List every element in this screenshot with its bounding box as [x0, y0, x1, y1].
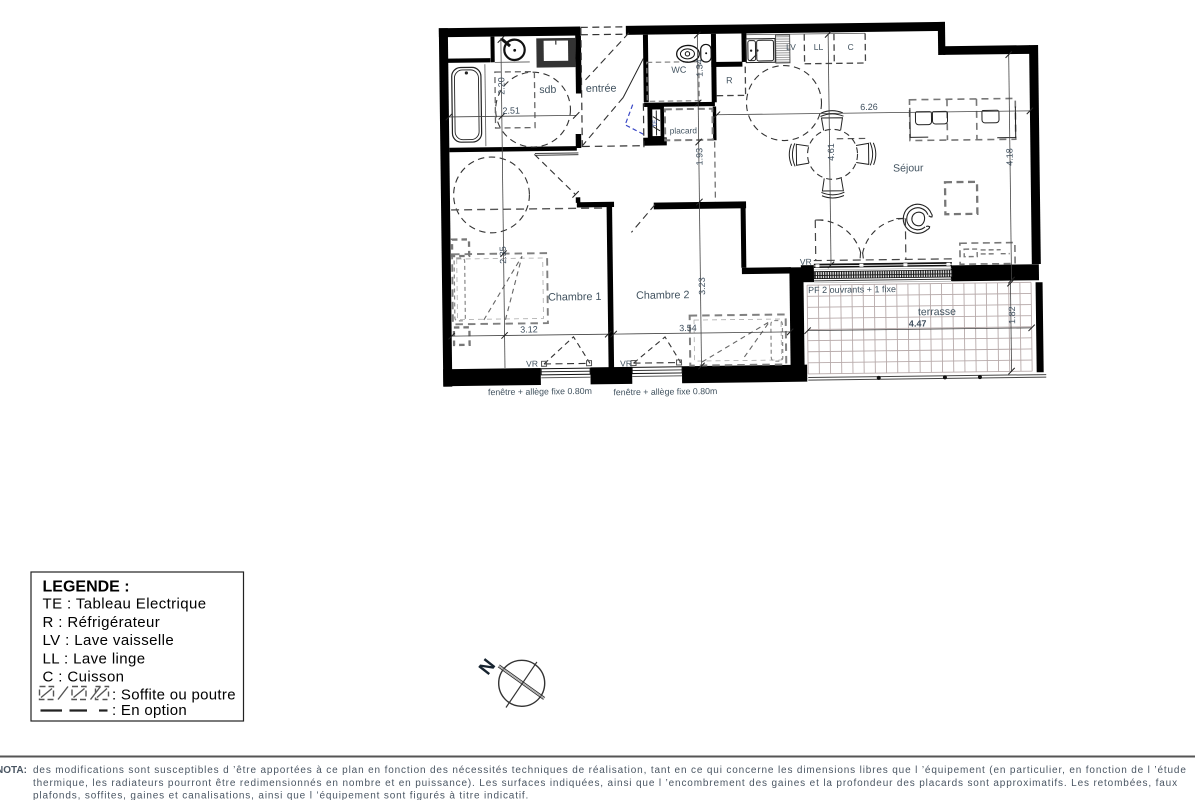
- svg-text:Séjour: Séjour: [893, 162, 924, 174]
- svg-text:4.18: 4.18: [1004, 148, 1014, 166]
- svg-text:3.12: 3.12: [520, 324, 538, 334]
- svg-text:LV: LV: [786, 42, 796, 52]
- svg-text:WC: WC: [671, 65, 687, 75]
- svg-text:2.20: 2.20: [496, 77, 506, 95]
- svg-text:1.82: 1.82: [1007, 306, 1017, 324]
- svg-text:1.93: 1.93: [694, 148, 704, 166]
- svg-text:R : Réfrigérateur: R : Réfrigérateur: [43, 614, 161, 631]
- svg-text:4.61: 4.61: [826, 143, 836, 161]
- svg-text:LL : Lave linge: LL : Lave linge: [43, 650, 146, 667]
- svg-text:Chambre 1: Chambre 1: [548, 291, 602, 304]
- svg-text:LL: LL: [814, 42, 824, 52]
- svg-text:fenêtre + allège fixe 0.80m: fenêtre + allège fixe 0.80m: [488, 386, 592, 397]
- svg-text:placard: placard: [670, 125, 698, 135]
- svg-text:PF 2 ouvrants + 1 fixe: PF 2 ouvrants + 1 fixe: [808, 284, 896, 295]
- svg-text:LV : Lave vaisselle: LV : Lave vaisselle: [43, 632, 175, 649]
- svg-text:thermique, les radiateurs pour: thermique, les radiateurs pourront être …: [33, 778, 1178, 789]
- svg-text:2.35: 2.35: [498, 246, 508, 264]
- svg-text:VR: VR: [620, 358, 632, 368]
- svg-text:: En option: : En option: [112, 702, 187, 719]
- svg-text:LEGENDE :: LEGENDE :: [43, 579, 130, 596]
- svg-text:3.23: 3.23: [697, 277, 707, 295]
- svg-text:2.51: 2.51: [502, 106, 520, 116]
- svg-text:4.47: 4.47: [909, 318, 927, 328]
- svg-text:des modifications sont suscept: des modifications sont susceptibles d ’ê…: [33, 765, 1187, 776]
- svg-text:VR: VR: [526, 359, 538, 369]
- svg-text:plafonds, soffites, gaines et: plafonds, soffites, gaines et canalisati…: [33, 790, 529, 800]
- svg-text:entrée: entrée: [586, 83, 617, 95]
- svg-text:VR: VR: [800, 257, 812, 267]
- svg-text:R: R: [726, 75, 733, 85]
- svg-text:C : Cuisson: C : Cuisson: [43, 669, 125, 686]
- svg-text:sdb: sdb: [539, 84, 556, 96]
- svg-text:terrasse: terrasse: [918, 306, 956, 318]
- svg-text:NOTA:: NOTA:: [0, 765, 27, 776]
- svg-text:C: C: [848, 42, 854, 52]
- svg-text:Chambre 2: Chambre 2: [636, 289, 690, 302]
- svg-text:6.26: 6.26: [860, 102, 878, 112]
- svg-text:fenêtre + allège fixe 0.80m: fenêtre + allège fixe 0.80m: [613, 386, 717, 397]
- svg-text:TE : Tableau Electrique: TE : Tableau Electrique: [43, 596, 207, 613]
- svg-text:3.54: 3.54: [679, 323, 697, 333]
- svg-text:1.34: 1.34: [694, 59, 704, 77]
- svg-text:TE: TE: [653, 120, 659, 128]
